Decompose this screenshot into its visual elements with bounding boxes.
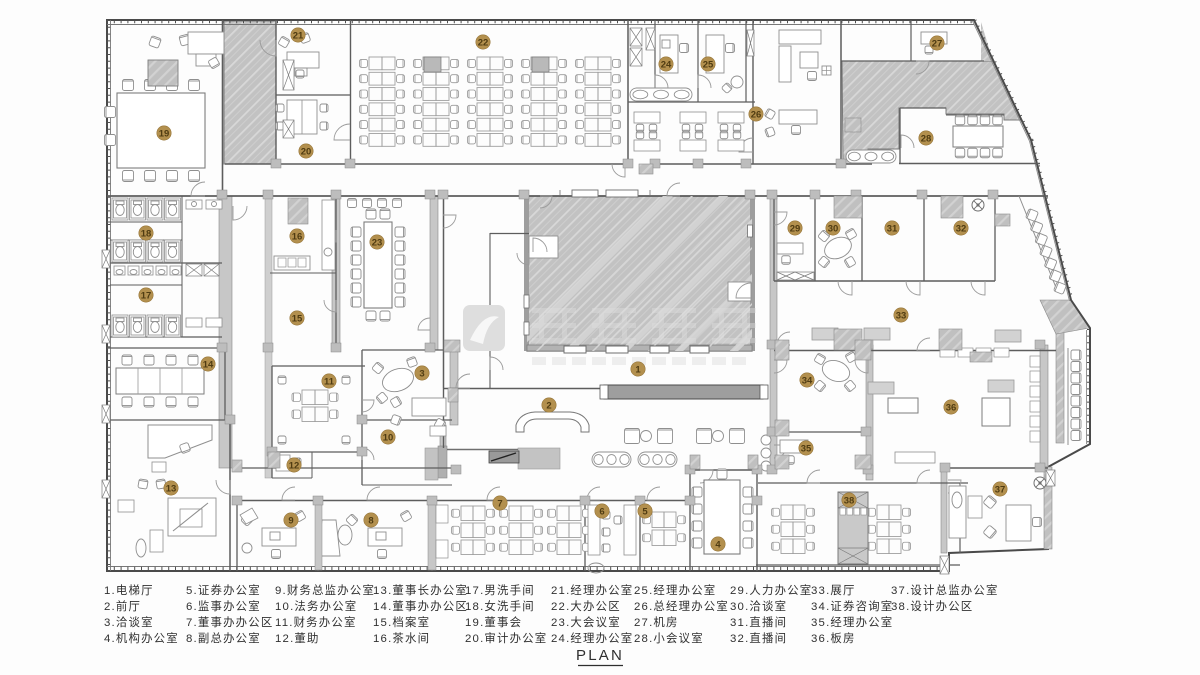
svg-text:11: 11 (324, 376, 335, 387)
svg-text:1: 1 (635, 364, 641, 375)
svg-text:36.板房: 36.板房 (811, 631, 856, 645)
svg-text:21.经理办公室: 21.经理办公室 (551, 583, 633, 597)
svg-text:10: 10 (383, 432, 394, 443)
svg-text:16.茶水间: 16.茶水间 (373, 632, 430, 645)
svg-text:29.人力办公室: 29.人力办公室 (730, 583, 812, 597)
svg-text:4.机构办公室: 4.机构办公室 (104, 631, 179, 645)
svg-text:17.男洗手间: 17.男洗手间 (465, 583, 535, 597)
svg-text:18: 18 (141, 228, 152, 239)
svg-text:7.董事办办公区: 7.董事办办公区 (186, 615, 273, 629)
svg-text:8: 8 (368, 515, 373, 526)
svg-text:23: 23 (372, 237, 383, 248)
svg-text:16: 16 (292, 231, 303, 242)
svg-text:9: 9 (288, 515, 293, 526)
svg-text:6.监事办公室: 6.监事办公室 (186, 599, 261, 613)
svg-text:3.洽谈室: 3.洽谈室 (104, 615, 154, 629)
svg-text:35: 35 (801, 443, 812, 454)
svg-text:20: 20 (301, 146, 312, 157)
svg-text:36: 36 (946, 402, 957, 413)
svg-text:33.展厅: 33.展厅 (811, 584, 856, 597)
svg-text:25: 25 (703, 59, 714, 70)
svg-text:12: 12 (289, 460, 300, 471)
svg-text:14.董事办办公区: 14.董事办办公区 (373, 599, 468, 613)
svg-text:24: 24 (661, 59, 672, 70)
svg-text:19: 19 (159, 128, 170, 139)
svg-text:38.设计办公区: 38.设计办公区 (891, 599, 973, 613)
svg-text:2: 2 (546, 400, 551, 411)
svg-text:26: 26 (751, 109, 762, 120)
svg-text:15: 15 (292, 313, 303, 324)
svg-text:30: 30 (828, 223, 839, 234)
svg-text:18.女洗手间: 18.女洗手间 (465, 599, 535, 613)
svg-text:24.经理办公室: 24.经理办公室 (551, 631, 633, 645)
svg-text:23.大会议室: 23.大会议室 (551, 615, 621, 629)
svg-text:5: 5 (642, 506, 648, 517)
svg-text:26.总经理办公室: 26.总经理办公室 (634, 599, 729, 613)
svg-text:9.财务总监办公室: 9.财务总监办公室 (275, 583, 375, 597)
svg-text:22: 22 (478, 37, 489, 48)
svg-text:19.董事会: 19.董事会 (465, 616, 522, 629)
svg-text:4: 4 (715, 539, 721, 550)
svg-text:28: 28 (921, 133, 932, 144)
svg-text:15.档案室: 15.档案室 (373, 615, 430, 629)
svg-text:10.法务办公室: 10.法务办公室 (275, 599, 357, 613)
svg-text:33: 33 (896, 310, 907, 321)
svg-text:6: 6 (599, 506, 604, 517)
svg-text:7: 7 (497, 498, 502, 509)
svg-text:29: 29 (790, 223, 801, 234)
svg-text:22.大办公区: 22.大办公区 (551, 599, 621, 613)
svg-text:17: 17 (141, 290, 152, 301)
svg-text:28.小会议室: 28.小会议室 (634, 631, 704, 645)
svg-text:8.副总办公室: 8.副总办公室 (186, 631, 261, 645)
svg-text:32.直播间: 32.直播间 (730, 631, 787, 645)
svg-text:35.经理办公室: 35.经理办公室 (811, 615, 893, 629)
svg-text:27: 27 (932, 38, 943, 49)
svg-text:32: 32 (956, 223, 967, 234)
svg-text:37: 37 (995, 484, 1006, 495)
svg-text:30.洽谈室: 30.洽谈室 (730, 599, 787, 613)
svg-text:13: 13 (166, 483, 177, 494)
svg-text:31: 31 (887, 223, 898, 234)
svg-text:5.证券办公室: 5.证券办公室 (186, 583, 261, 597)
svg-text:27.机房: 27.机房 (634, 615, 679, 629)
svg-text:14: 14 (203, 359, 214, 370)
svg-text:21: 21 (293, 30, 304, 41)
svg-text:13.董事长办公室: 13.董事长办公室 (373, 583, 468, 597)
svg-text:31.直播间: 31.直播间 (730, 615, 787, 629)
svg-text:3: 3 (419, 368, 424, 379)
svg-text:PLAN: PLAN (576, 647, 624, 664)
svg-text:2.前厅: 2.前厅 (104, 599, 141, 613)
svg-text:1.电梯厅: 1.电梯厅 (104, 584, 154, 597)
svg-text:34: 34 (802, 375, 813, 386)
svg-text:12.董助: 12.董助 (275, 631, 320, 645)
svg-text:34.证券咨询室: 34.证券咨询室 (811, 599, 893, 613)
svg-text:38: 38 (844, 495, 855, 506)
svg-text:20.审计办公室: 20.审计办公室 (465, 631, 547, 645)
svg-text:37.设计总监办公室: 37.设计总监办公室 (891, 583, 999, 597)
svg-text:11.财务办公室: 11.财务办公室 (275, 615, 357, 629)
svg-text:25.经理办公室: 25.经理办公室 (634, 583, 716, 597)
